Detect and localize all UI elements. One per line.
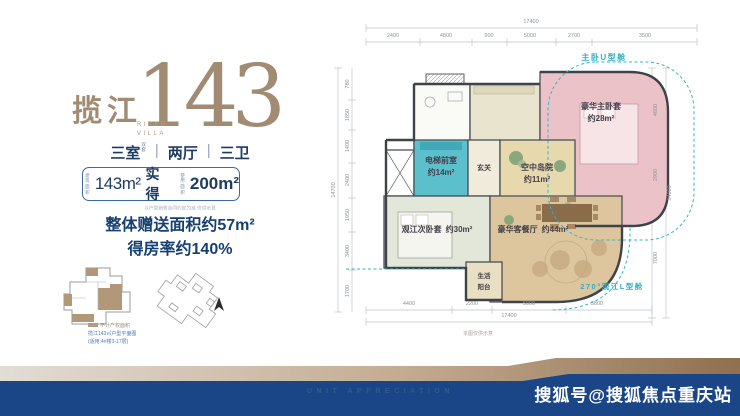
dim-bottom-seg: 4400 xyxy=(403,301,415,307)
floorplan-poster: 143 揽江 RIVER VILLA 三室双套 | 两厅 | 三卫 建筑面积 1… xyxy=(0,0,740,416)
built-area-badge: 建筑面积 xyxy=(83,173,92,196)
rooms-note: 双套 xyxy=(141,142,146,152)
dim-right-total: 14000 xyxy=(667,185,673,200)
usable-area-value: 200m² xyxy=(190,174,239,194)
room-master-name: 豪华主卧套 xyxy=(581,101,621,112)
swatch-label: 不计产权面积 xyxy=(100,323,130,329)
dim-bottom-seg: 5000 xyxy=(523,301,535,307)
efficiency-line: 得房率约140% xyxy=(60,235,300,259)
thumbnail-legend: 不计产权面积 揽江143㎡户型平面图 (适用:4#楼3-17层) xyxy=(88,322,136,346)
dim-left-seg: 1850 xyxy=(345,109,351,121)
room-master-area: 约28m² xyxy=(588,113,615,124)
dim-top-seg: 2700 xyxy=(568,33,580,39)
usable-area-badge: 使用面积 xyxy=(178,173,187,196)
separator: | xyxy=(155,142,159,159)
gift-area-thumbnail xyxy=(58,258,140,332)
dim-right-seg: 7000 xyxy=(653,252,659,264)
watermark-sohu: 搜狐号@搜狐焦点重庆站 xyxy=(534,381,732,406)
dim-bottom-seg: 2200 xyxy=(466,301,478,307)
rooms-count: 三室 xyxy=(110,145,140,162)
dim-left-seg: 1700 xyxy=(345,285,351,297)
gift-area-swatch xyxy=(88,323,98,327)
room-spec-line: 三室双套 | 两厅 | 三卫 xyxy=(60,142,300,163)
project-subtitle: RIVER VILLA xyxy=(137,121,168,139)
room-courtyard-name: 空中岛院 xyxy=(521,162,553,173)
dim-top-seg: 900 xyxy=(484,33,493,39)
dim-top-total: 17400 xyxy=(523,19,538,25)
callout-river-view: 270°观江L型舱 xyxy=(580,281,644,292)
dim-bottom-total: 17400 xyxy=(501,313,516,319)
room-elevator-name: 电梯前室 xyxy=(425,155,457,166)
room-second-suite: 观江次卧套约30m² xyxy=(400,224,475,235)
room-balcony-line1: 生活 xyxy=(478,270,491,280)
dim-left-seg: 780 xyxy=(345,79,351,88)
built-area-value: 143m² xyxy=(95,174,141,194)
dim-bottom-seg: 3800 xyxy=(591,301,603,307)
room-balcony-line2: 阳台 xyxy=(478,281,491,291)
dim-right-seg: 2900 xyxy=(653,169,659,181)
dim-left-total: 14700 xyxy=(331,182,337,197)
room-foyer: 玄关 xyxy=(477,163,491,173)
dim-top-seg: 2400 xyxy=(387,33,399,39)
bonus-area-line: 整体赠送面积约57m² xyxy=(60,211,300,235)
plan-note: 本图仅供示意 xyxy=(463,330,493,337)
actual-label: 实得 xyxy=(146,164,174,204)
dim-left-seg: 1950 xyxy=(345,209,351,221)
rotated-plan-thumbnail xyxy=(146,264,242,342)
dim-right-seg: 4800 xyxy=(653,104,659,116)
legend-caption-1: 揽江143㎡户型平面图 xyxy=(88,330,136,338)
separator: | xyxy=(207,142,211,159)
dim-left-seg: 1400 xyxy=(345,140,351,152)
callout-master-bay: 主卧U型舱 xyxy=(581,52,626,63)
area-disclaimer: 以户型销售合同约定为准 仅供示意 xyxy=(86,204,273,211)
dim-left-seg: 3400 xyxy=(345,245,351,257)
area-pill: 建筑面积 143m² 实得 使用面积 200m² xyxy=(82,167,240,201)
room-courtyard-area: 约11m² xyxy=(524,174,550,185)
room-living-dining: 豪华客餐厅约44m² xyxy=(496,224,571,235)
dim-top-seg: 5000 xyxy=(524,33,536,39)
room-elevator-area: 约14m² xyxy=(428,167,455,178)
project-name: 揽江 xyxy=(72,86,142,130)
north-arrow-icon xyxy=(212,296,226,314)
dim-top-seg: 4800 xyxy=(440,33,452,39)
dim-left-seg: 2400 xyxy=(345,174,351,186)
legend-caption-2: (适用:4#楼3-17层) xyxy=(88,338,136,346)
footer-tagline: UNIT APPRECIATION xyxy=(307,388,454,395)
halls-count: 两厅 xyxy=(168,142,198,163)
dim-top-seg: 3500 xyxy=(639,33,651,39)
baths-count: 三卫 xyxy=(220,142,250,163)
